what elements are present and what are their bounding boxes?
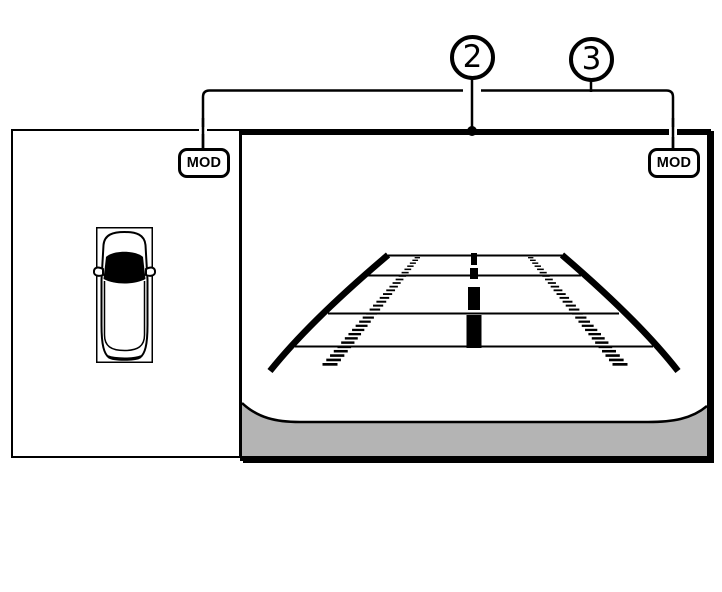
camera-guide-overlay [242,135,707,456]
side-mirror-left [94,268,103,276]
mod-badge-right: MOD [648,148,700,178]
windshield [104,252,146,284]
callout-3-label: 3 [582,44,602,75]
mod-badge-left-label: MOD [187,155,221,171]
callout-circle-3: 3 [569,37,614,82]
car-body [102,232,148,360]
bumper-edge [242,403,707,422]
center-dash-line [467,253,482,348]
callout-2-label: 2 [463,42,483,73]
birds-eye-panel [11,129,241,458]
line-gap-halo [463,85,481,95]
rear-camera-panel [240,129,711,461]
mod-badge-right-label: MOD [657,155,691,171]
side-mirror-right [146,268,155,276]
bumper-area [242,403,707,456]
callout-circle-2: 2 [450,35,495,80]
car-top-view [88,225,161,367]
mod-badge-left: MOD [178,148,230,178]
diagram-stage: 2 3 MOD MOD [0,0,722,592]
